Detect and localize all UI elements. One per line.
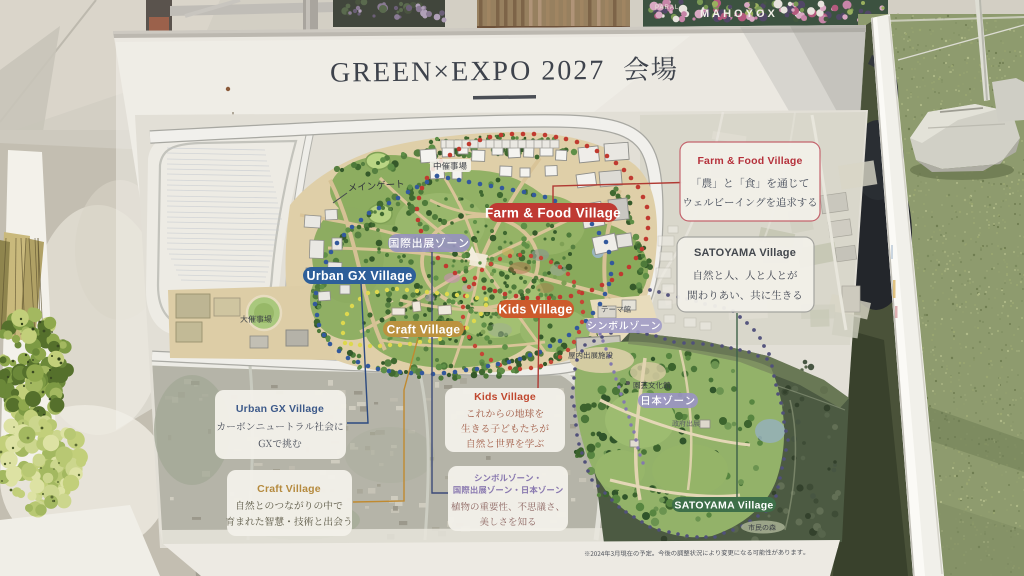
svg-text:Farm & Food Village: Farm & Food Village xyxy=(697,155,802,167)
svg-text:MAHOYOX: MAHOYOX xyxy=(700,8,778,20)
svg-text:Craft Village: Craft Village xyxy=(257,483,321,495)
svg-text:Craft Village: Craft Village xyxy=(387,322,461,336)
svg-text:SATOYAMA Village: SATOYAMA Village xyxy=(674,499,773,511)
svg-text:GREEN×EXPO 2027: GREEN×EXPO 2027 xyxy=(330,55,606,89)
svg-text:Kids Village: Kids Village xyxy=(474,391,536,403)
svg-text:SATOYAMA Village: SATOYAMA Village xyxy=(694,247,796,259)
svg-text:Kids Village: Kids Village xyxy=(498,303,572,317)
svg-text:Urban GX Village: Urban GX Village xyxy=(307,269,413,283)
svg-text:Urban GX Village: Urban GX Village xyxy=(236,403,324,415)
svg-text:Farm & Food Village: Farm & Food Village xyxy=(485,205,621,220)
svg-text:PARAL: PARAL xyxy=(655,5,679,11)
